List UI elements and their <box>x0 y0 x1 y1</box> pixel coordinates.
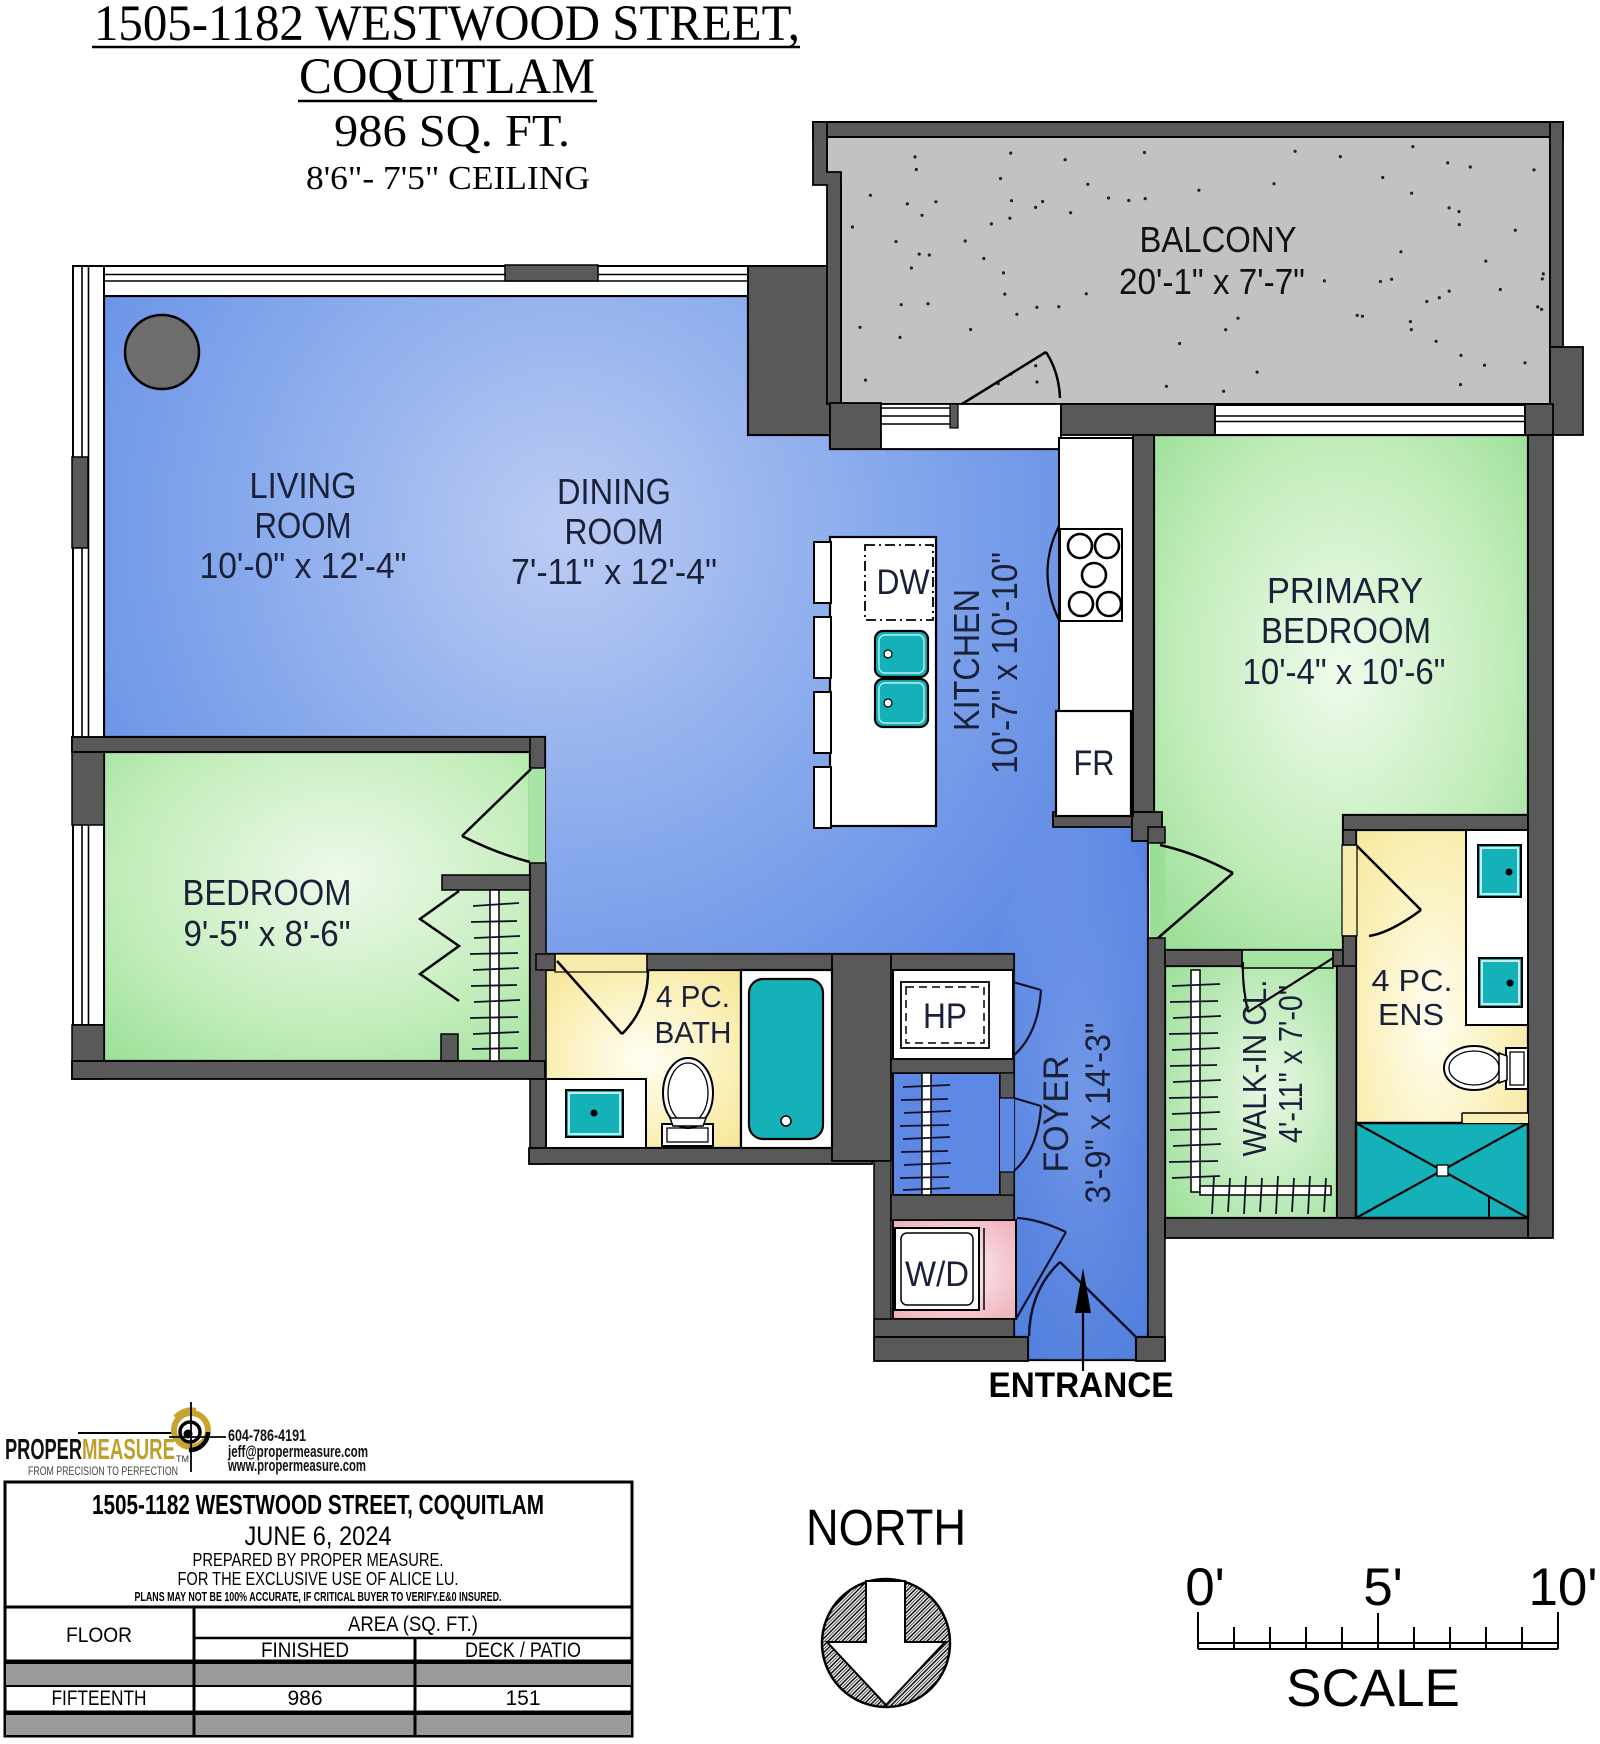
svg-text:986 SQ. FT.: 986 SQ. FT. <box>334 106 570 156</box>
svg-text:ROOM: ROOM <box>255 505 352 546</box>
svg-text:4 PC.: 4 PC. <box>1372 963 1453 998</box>
svg-text:FIFTEENTH: FIFTEENTH <box>52 1687 147 1710</box>
svg-text:LIVING: LIVING <box>250 465 357 506</box>
svg-text:JUNE 6, 2024: JUNE 6, 2024 <box>245 1521 392 1551</box>
svg-text:5': 5' <box>1363 1558 1403 1617</box>
svg-text:BEDROOM: BEDROOM <box>183 872 352 913</box>
svg-text:9'-5" x 8'-6": 9'-5" x 8'-6" <box>184 913 351 954</box>
svg-text:FROM PRECISION TO PERFECTION: FROM PRECISION TO PERFECTION <box>28 1464 178 1478</box>
svg-text:DINING: DINING <box>557 471 671 512</box>
svg-text:COQUITLAM: COQUITLAM <box>299 49 595 105</box>
svg-text:0': 0' <box>1185 1558 1225 1617</box>
svg-text:1505-1182 WESTWOOD STREET, COQ: 1505-1182 WESTWOOD STREET, COQUITLAM <box>92 1489 544 1520</box>
svg-text:PREPARED BY PROPER MEASURE.: PREPARED BY PROPER MEASURE. <box>193 1550 444 1570</box>
svg-text:7'-11" x 12'-4": 7'-11" x 12'-4" <box>511 551 717 592</box>
svg-text:FOR THE EXCLUSIVE USE OF ALICE: FOR THE EXCLUSIVE USE OF ALICE LU. <box>178 1569 459 1589</box>
svg-text:1505-1182 WESTWOOD STREET,: 1505-1182 WESTWOOD STREET, <box>94 0 800 52</box>
svg-text:4'-11" x 7'-0": 4'-11" x 7'-0" <box>1272 985 1309 1143</box>
svg-text:W/D: W/D <box>905 1255 969 1294</box>
svg-text:TM: TM <box>176 1454 189 1464</box>
svg-text:DW: DW <box>877 563 930 602</box>
svg-text:FOYER: FOYER <box>1037 1056 1076 1173</box>
svg-text:FLOOR: FLOOR <box>66 1624 132 1647</box>
svg-text:10'-0" x 12'-4": 10'-0" x 12'-4" <box>200 545 407 586</box>
svg-text:NORTH: NORTH <box>806 1499 966 1556</box>
svg-text:HP: HP <box>923 997 967 1036</box>
svg-text:10'-4" x 10'-6": 10'-4" x 10'-6" <box>1243 651 1446 692</box>
svg-text:FR: FR <box>1074 744 1115 783</box>
svg-text:BATH: BATH <box>655 1015 732 1050</box>
svg-text:20'-1" x 7'-7": 20'-1" x 7'-7" <box>1119 261 1305 302</box>
svg-text:PROPER: PROPER <box>5 1434 82 1466</box>
svg-text:8'6"- 7'5" CEILING: 8'6"- 7'5" CEILING <box>306 160 590 197</box>
svg-text:151: 151 <box>505 1687 540 1710</box>
svg-text:DECK / PATIO: DECK / PATIO <box>465 1639 581 1662</box>
svg-text:ROOM: ROOM <box>565 511 664 552</box>
svg-text:10'-7" x 10'-10": 10'-7" x 10'-10" <box>984 552 1025 774</box>
svg-text:986: 986 <box>287 1687 322 1710</box>
svg-text:PLANS MAY NOT BE 100% ACCURATE: PLANS MAY NOT BE 100% ACCURATE, IF CRITI… <box>135 1589 502 1604</box>
svg-text:BEDROOM: BEDROOM <box>1261 610 1431 651</box>
svg-text:BALCONY: BALCONY <box>1140 219 1297 260</box>
svg-text:WALK-IN CL.: WALK-IN CL. <box>1236 980 1273 1157</box>
svg-text:4 PC.: 4 PC. <box>656 979 730 1014</box>
svg-text:ENS: ENS <box>1378 997 1444 1032</box>
svg-text:10': 10' <box>1528 1558 1597 1617</box>
svg-text:3'-9" x 14'-3": 3'-9" x 14'-3" <box>1079 1023 1118 1204</box>
svg-text:SCALE: SCALE <box>1286 1659 1460 1718</box>
svg-text:PRIMARY: PRIMARY <box>1267 570 1423 611</box>
svg-text:MEASURE: MEASURE <box>82 1434 175 1466</box>
svg-text:AREA (SQ. FT.): AREA (SQ. FT.) <box>348 1613 478 1636</box>
svg-text:www.propermeasure.com: www.propermeasure.com <box>227 1456 366 1475</box>
svg-text:KITCHEN: KITCHEN <box>946 589 987 731</box>
svg-text:FINISHED: FINISHED <box>261 1639 349 1662</box>
svg-text:ENTRANCE: ENTRANCE <box>989 1366 1174 1405</box>
